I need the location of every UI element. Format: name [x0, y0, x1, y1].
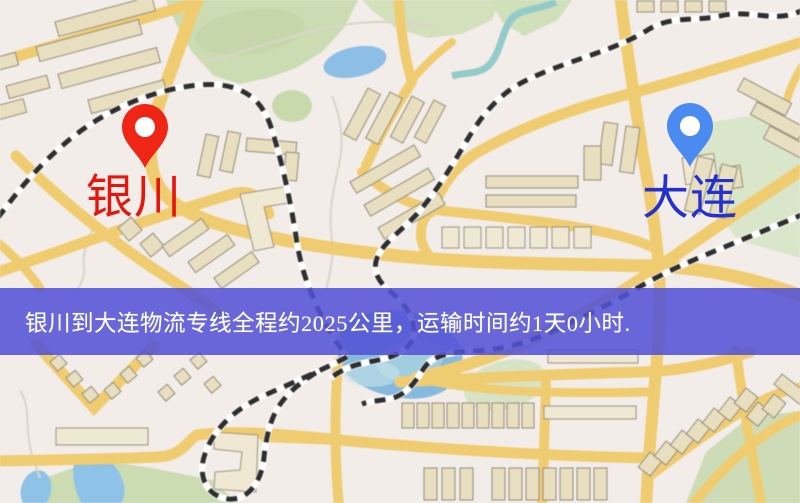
pin-hole [680, 116, 700, 136]
map-pin-icon [117, 100, 173, 172]
banner-text: 银川到大连物流专线全程约2025公里，运输时间约1天0小时. [0, 306, 631, 338]
map-graphics [0, 0, 800, 503]
route-info-banner: 银川到大连物流专线全程约2025公里，运输时间约1天0小时. [0, 288, 800, 355]
pin-hole [135, 117, 155, 137]
origin-pin[interactable] [117, 100, 173, 172]
destination-pin[interactable] [662, 99, 718, 171]
map-canvas[interactable]: 银川 大连 银川到大连物流专线全程约2025公里，运输时间约1天0小时. [0, 0, 800, 503]
origin-label: 银川 [86, 175, 182, 222]
destination-label: 大连 [642, 176, 738, 223]
map-pin-icon [662, 99, 718, 171]
